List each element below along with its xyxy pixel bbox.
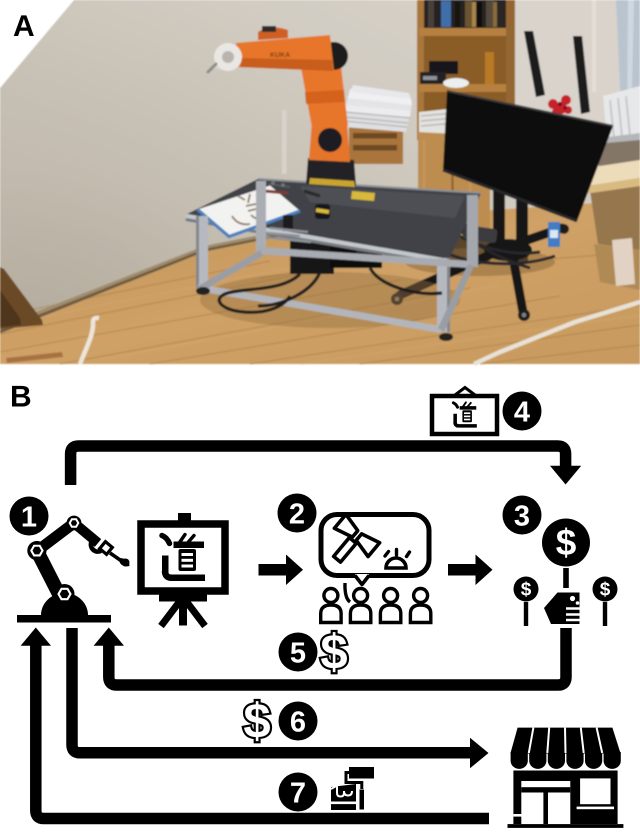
svg-text:$: $ — [320, 626, 347, 680]
svg-text:1: 1 — [21, 502, 37, 534]
svg-text:$: $ — [556, 522, 577, 563]
svg-text:B: B — [10, 381, 32, 414]
svg-text:3: 3 — [514, 501, 530, 533]
svg-text:6: 6 — [290, 707, 306, 739]
svg-text:A: A — [13, 10, 35, 43]
svg-text:2: 2 — [289, 499, 305, 531]
svg-text:$: $ — [243, 695, 270, 749]
svg-text:KUKA: KUKA — [270, 52, 290, 59]
svg-text:7: 7 — [290, 778, 306, 810]
svg-text:4: 4 — [514, 397, 530, 429]
svg-text:5: 5 — [290, 638, 306, 670]
